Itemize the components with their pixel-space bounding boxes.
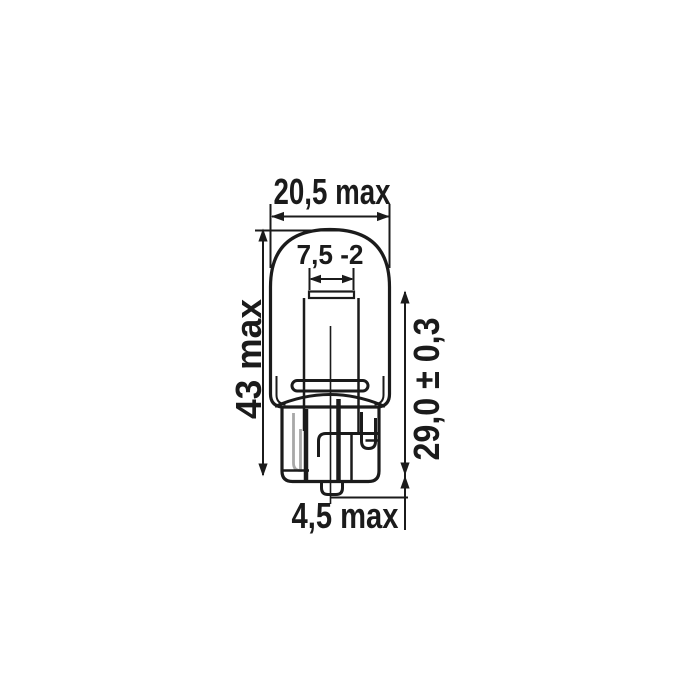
bulb-dimension-diagram: 20,5 max 7,5 -2 43 max 29,0 ± 0,3 xyxy=(0,0,700,700)
arrowhead-right-icon xyxy=(342,275,354,284)
arrowhead-left-icon xyxy=(309,275,321,284)
contact-wire-bar xyxy=(319,434,380,458)
stem-cap xyxy=(309,292,354,299)
arrowhead-up-outside-icon xyxy=(400,476,409,489)
glass-inner-wall-left xyxy=(277,376,286,405)
dim-label-base-length: 29,0 ± 0,3 xyxy=(406,318,447,461)
arrowhead-left-icon xyxy=(271,212,284,221)
glass-inner-wall-right xyxy=(375,376,384,405)
arrowhead-up-icon xyxy=(400,291,409,304)
dim-base-length: 29,0 ± 0,3 xyxy=(400,291,447,531)
arrowhead-right-icon xyxy=(377,212,390,221)
contact-wire-left-hook xyxy=(294,413,301,471)
dim-wedge-tip-length: 4,5 max xyxy=(292,495,409,536)
wedge-tip xyxy=(322,482,343,495)
dim-pinch-width: 7,5 -2 xyxy=(297,239,364,290)
arrowhead-down-icon xyxy=(400,463,409,476)
technical-drawing: 20,5 max 7,5 -2 43 max 29,0 ± 0,3 xyxy=(0,0,700,700)
dim-label-wedge-tip-length: 4,5 max xyxy=(292,495,399,536)
contact-wire-right-hook xyxy=(362,412,376,449)
dim-label-overall-length: 43 max xyxy=(228,299,269,419)
dim-label-bulb-width: 20,5 max xyxy=(274,171,391,212)
bulb xyxy=(271,230,390,505)
dim-label-pinch-width: 7,5 -2 xyxy=(297,239,364,270)
arrowhead-down-icon xyxy=(258,464,267,477)
